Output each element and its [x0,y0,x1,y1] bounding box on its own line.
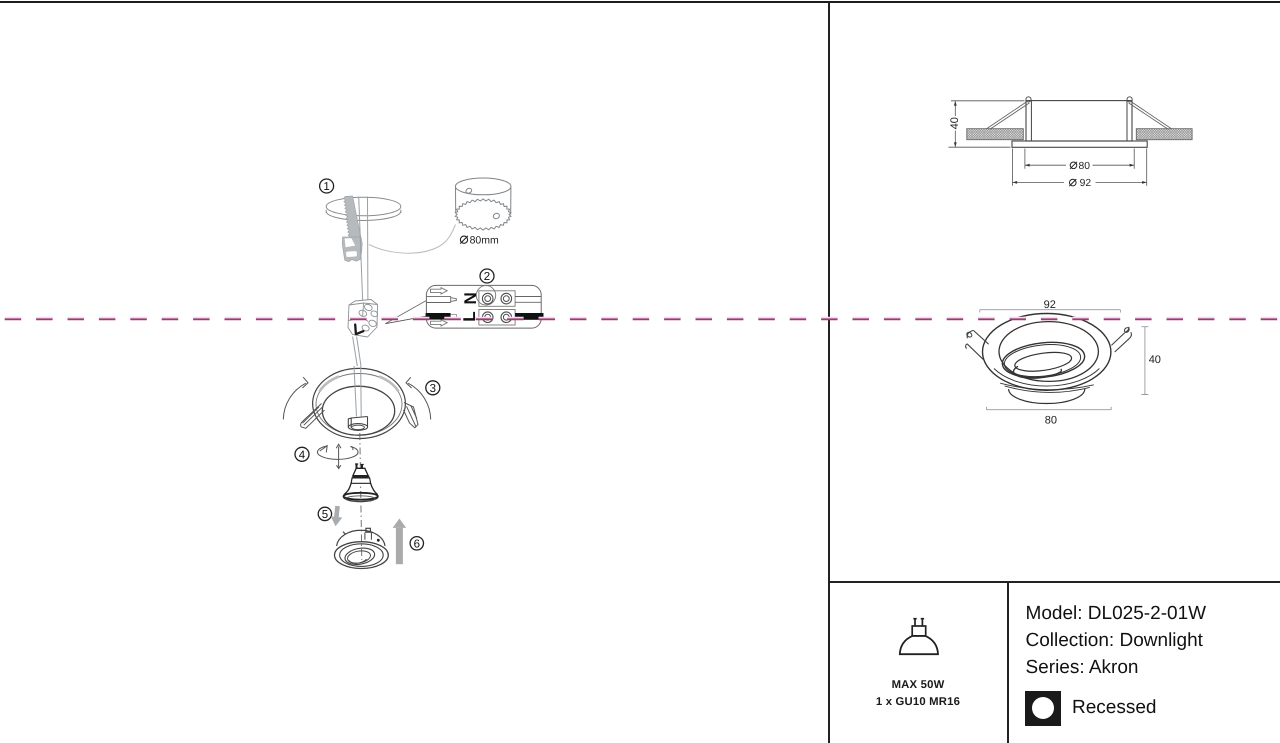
svg-text:N: N [461,292,480,304]
svg-text:6: 6 [414,539,420,551]
svg-text:80mm: 80mm [470,234,499,246]
svg-text:3: 3 [430,383,436,395]
svg-text:2: 2 [484,271,490,283]
svg-text:40: 40 [949,117,961,129]
svg-text:1: 1 [323,181,329,193]
svg-text:L: L [460,311,479,321]
svg-text:92: 92 [1080,178,1092,189]
svg-text:80: 80 [1079,161,1091,172]
svg-text:40: 40 [1149,354,1161,366]
svg-text:5: 5 [322,509,328,521]
svg-text:80: 80 [1045,415,1057,427]
svg-text:92: 92 [1044,299,1056,311]
svg-text:4: 4 [299,450,306,462]
